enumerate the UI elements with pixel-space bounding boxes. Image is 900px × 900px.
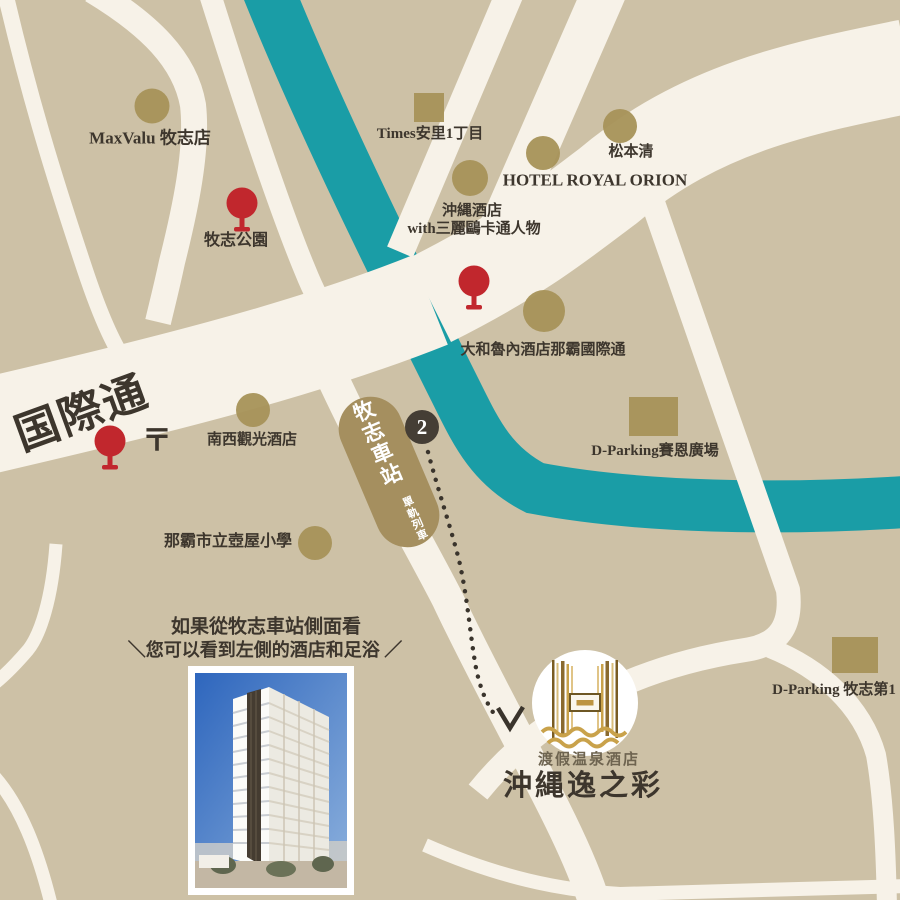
hotel-tagline: 渡假温泉酒店 (538, 752, 640, 769)
label-makishi-park: 牧志公園 (204, 232, 268, 250)
building-photo-illustration (195, 673, 347, 888)
label-maxvalu: MaxValu 牧志店 (89, 130, 211, 149)
label-matsumotokiyoshi: 松本清 (608, 144, 653, 161)
label-nansei-kanko-hotel: 南西觀光酒店 (207, 432, 297, 449)
station-exit-number: 2 (417, 415, 428, 440)
access-map: { "map": { "pois": { "maxvalu": "MaxValu… (0, 0, 900, 900)
hotel-photo (188, 666, 354, 895)
label-okinawa-hotel-line1: 沖縄酒店 (442, 203, 502, 220)
label-tsuboya-school: 那霸市立壺屋小學 (164, 533, 292, 551)
label-hotel-royal-orion: HOTEL ROYAL ORION (503, 172, 688, 191)
building-dparking-saion (629, 397, 678, 436)
building-times-parking (414, 93, 444, 122)
caption-line1: 如果從牧志車站側面看 (171, 618, 361, 639)
hotel-name: 沖縄逸之彩 (503, 771, 663, 803)
building-matsumotokiyoshi (603, 109, 637, 143)
station-exit-badge: 2 (405, 410, 439, 444)
station-line-label: 單軌列車 (387, 494, 432, 549)
label-daiwa-roynet: 大和魯內酒店那霸國際通 (460, 342, 625, 359)
building-okinawa-hotel (452, 160, 488, 196)
hotel-logo (532, 650, 638, 756)
building-hotel-royal-orion (526, 136, 560, 170)
building-maxvalu (135, 89, 170, 124)
label-times-parking: Times安里1丁目 (377, 126, 483, 143)
building-daiwa-roynet (523, 290, 565, 332)
label-dparking-makishi-no1: D-Parking 牧志第1 (772, 682, 896, 699)
building-nansei-kanko (236, 393, 270, 427)
label-okinawa-hotel-line2: with三麗鷗卡通人物 (407, 221, 540, 238)
building-tsuboya-school (298, 526, 332, 560)
caption-line2: ＼您可以看到左側的酒店和足浴 ／ (128, 641, 403, 661)
postal-mark-icon: 〒 (142, 425, 172, 458)
building-dparking-makishi (832, 637, 878, 673)
label-dparking-saion: D-Parking賽恩廣場 (591, 443, 719, 460)
